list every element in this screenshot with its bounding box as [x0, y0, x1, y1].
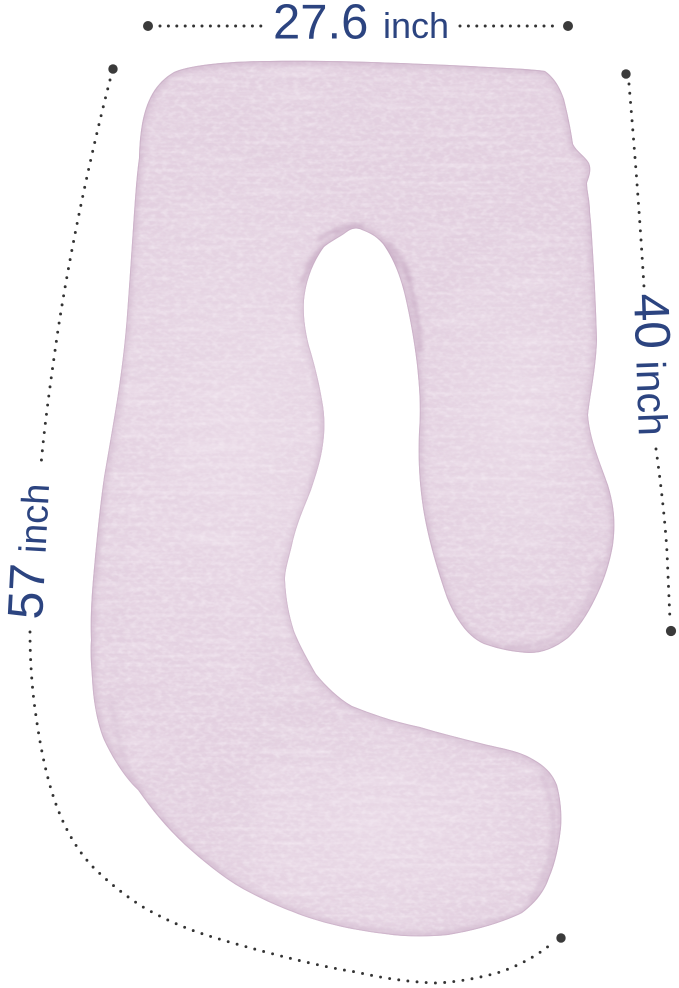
svg-text:27.6: 27.6: [273, 0, 368, 50]
svg-text:57 inch: 57 inch: [0, 482, 60, 621]
svg-text:inch: inch: [383, 5, 449, 46]
svg-text:40 inch: 40 inch: [623, 292, 679, 436]
